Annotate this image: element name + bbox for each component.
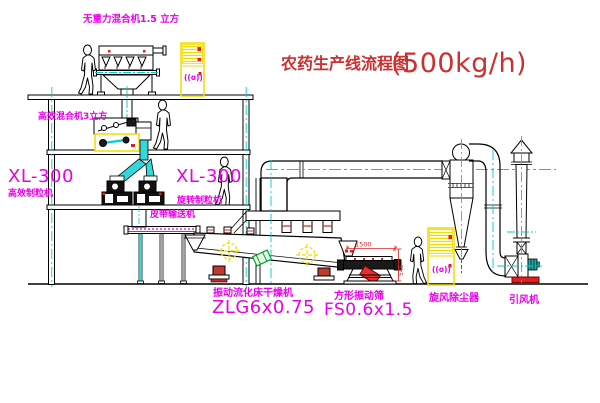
control-cabinet-top: ((o))	[181, 43, 204, 96]
dryer-feet	[209, 266, 334, 282]
worker-second-floor	[154, 100, 171, 149]
label-mid-granulator: 旋转制粒机	[176, 194, 222, 206]
mixer-drive-box	[95, 134, 139, 151]
control-cabinet-ground: ((o))	[428, 228, 454, 285]
motor-symbol: ((o))	[432, 265, 451, 274]
granulator-right	[134, 181, 164, 205]
cad-flow-diagram: ((o))	[0, 0, 600, 403]
worker-top-floor	[79, 45, 96, 94]
title-capacity: (500kg/h)	[391, 48, 527, 79]
label-fan: 引风机	[509, 293, 539, 306]
label-top-mixer: 无重力混合机1.5 立方	[82, 13, 180, 25]
motor-symbol: ((o))	[184, 73, 203, 82]
granulator-left	[102, 181, 132, 205]
fan-motor	[528, 259, 540, 270]
gravity-free-mixer	[94, 46, 167, 95]
diagram-svg: ((o))	[0, 0, 600, 403]
label-second-mixer: 高效混合机3立方	[38, 110, 107, 122]
dryer-springs	[207, 221, 332, 235]
drawing-title: 农药生产线流程图 (500kg/h)	[280, 48, 527, 79]
dim-545: 545	[398, 264, 405, 276]
label-belt-conveyor: 皮带输送机	[149, 208, 195, 220]
label-cyclone: 旋风除尘器	[428, 291, 480, 304]
label-dryer-model: ZLG6x0.75	[212, 297, 315, 318]
label-xl300-mid: XL-300	[176, 166, 242, 187]
vibrating-screen: 1500 545	[338, 241, 406, 285]
discharge-pipe	[132, 206, 146, 227]
belt-legs	[138, 234, 187, 284]
worker-ground	[410, 237, 426, 284]
dim-1500: 1500	[355, 241, 372, 249]
downcomer-pipe	[469, 144, 505, 276]
title-text: 农药生产线流程图	[280, 54, 409, 73]
label-xl300-left: XL-300	[8, 166, 74, 187]
label-screen-model: FS0.6x1.5	[324, 300, 413, 320]
label-left-granulator: 高效制粒机	[8, 187, 53, 199]
